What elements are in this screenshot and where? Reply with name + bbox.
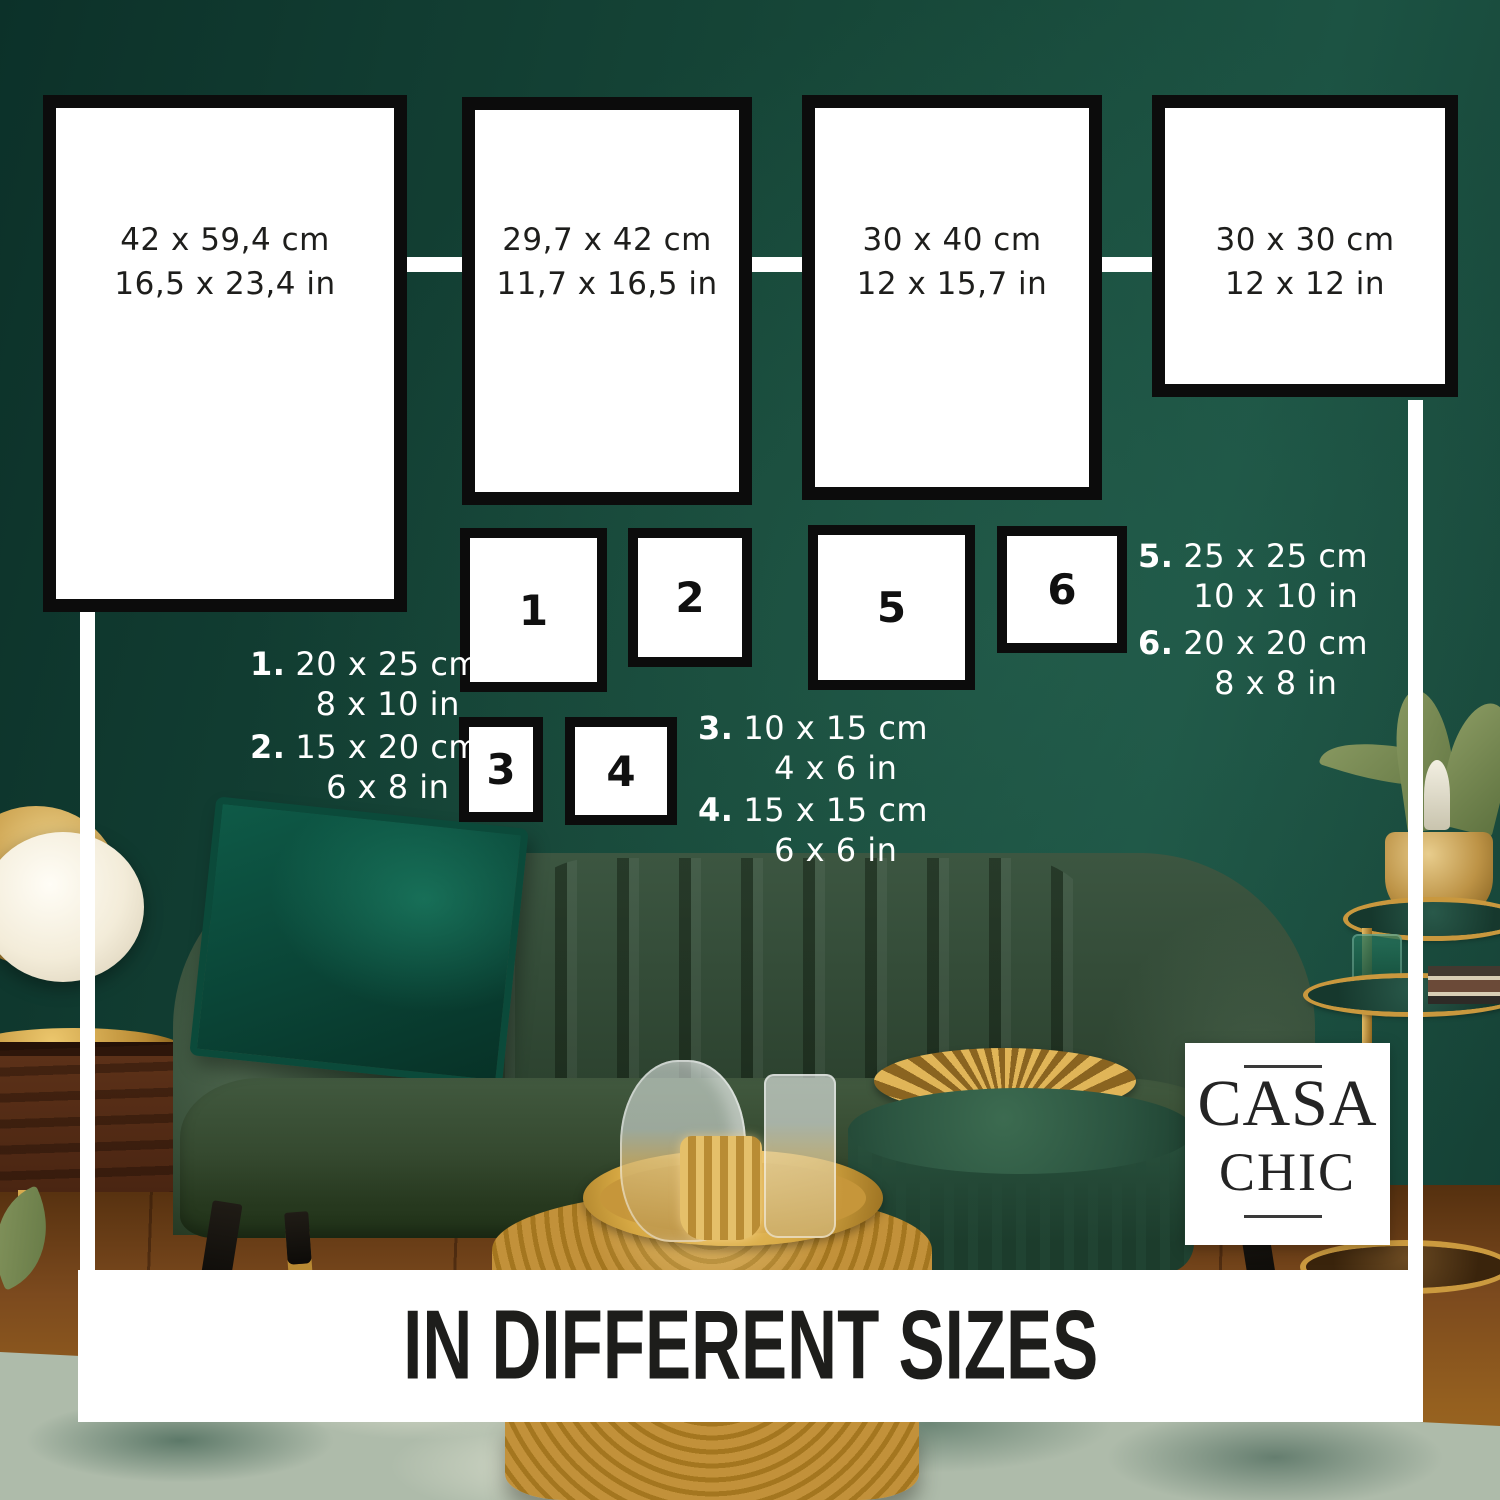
frame-20x25: 1	[460, 528, 607, 692]
legend-item-3: 3. 10 x 15 cm 4 x 6 in	[698, 708, 928, 788]
connector-line-left	[80, 612, 95, 1272]
legend-item-6: 6. 20 x 20 cm 8 x 8 in	[1138, 623, 1368, 703]
product-image: 42 x 59,4 cm 16,5 x 23,4 in 29,7 x 42 cm…	[0, 0, 1500, 1500]
legend-item-2: 2. 15 x 20 cm 6 x 8 in	[250, 727, 480, 807]
legend-number: 1.	[250, 644, 285, 724]
legend-cm: 20 x 25 cm	[295, 645, 480, 683]
legend-item-1: 1. 20 x 25 cm 8 x 10 in	[250, 644, 480, 724]
logo-text-casa: CASA	[1185, 1071, 1390, 1137]
legend-in: 8 x 10 in	[316, 685, 460, 723]
frame-size-cm: 30 x 40 cm	[815, 218, 1089, 262]
frame-number: 1	[519, 586, 548, 635]
logo-rule-bottom	[1244, 1215, 1322, 1218]
frame-number: 4	[606, 747, 635, 796]
legend-item-5: 5. 25 x 25 cm 10 x 10 in	[1138, 536, 1368, 616]
legend-in: 4 x 6 in	[774, 749, 897, 787]
frame-30x30: 30 x 30 cm 12 x 12 in	[1152, 95, 1458, 397]
legend-in: 6 x 8 in	[326, 768, 449, 806]
frame-20x20: 6	[997, 526, 1127, 653]
legend-cm: 15 x 20 cm	[295, 728, 480, 766]
frame-42x59: 42 x 59,4 cm 16,5 x 23,4 in	[43, 95, 407, 612]
legend-cm: 15 x 15 cm	[743, 791, 928, 829]
highball-glass	[764, 1074, 836, 1238]
textured-votive-glass	[680, 1136, 762, 1240]
frame-size-cm: 30 x 30 cm	[1165, 218, 1445, 262]
frame-15x20: 2	[628, 528, 752, 667]
legend-number: 6.	[1138, 623, 1173, 703]
legend-in: 6 x 6 in	[774, 831, 897, 869]
plant-bud	[1424, 760, 1450, 830]
legend-in: 10 x 10 in	[1193, 577, 1358, 615]
frame-number: 2	[675, 573, 704, 622]
frame-29x42: 29,7 x 42 cm 11,7 x 16,5 in	[462, 97, 752, 505]
gold-coffee-table-base	[505, 1422, 919, 1500]
legend-cm: 20 x 20 cm	[1183, 624, 1368, 662]
legend-number: 2.	[250, 727, 285, 807]
frame-25x25: 5	[808, 525, 975, 690]
books-stack	[1428, 966, 1500, 1004]
legend-in: 8 x 8 in	[1214, 664, 1337, 702]
banner-title: IN DIFFERENT SIZES	[403, 1290, 1098, 1402]
frame-size-in: 12 x 15,7 in	[815, 262, 1089, 306]
sofa-leg	[284, 1211, 312, 1265]
frame-size-in: 12 x 12 in	[1165, 262, 1445, 306]
logo-text-chic: CHIC	[1185, 1145, 1390, 1199]
brand-logo: CASA CHIC	[1185, 1043, 1390, 1245]
legend-cm: 25 x 25 cm	[1183, 537, 1368, 575]
legend-cm: 10 x 15 cm	[743, 709, 928, 747]
bottom-banner: IN DIFFERENT SIZES	[78, 1270, 1423, 1422]
frame-number: 6	[1047, 565, 1076, 614]
velvet-pillow	[189, 796, 528, 1087]
frame-number: 3	[486, 745, 515, 794]
frame-30x40: 30 x 40 cm 12 x 15,7 in	[802, 95, 1102, 500]
ottoman-top	[848, 1088, 1194, 1174]
legend-number: 4.	[698, 790, 733, 870]
frame-size-cm: 29,7 x 42 cm	[475, 218, 739, 262]
frame-15x15: 4	[565, 717, 677, 825]
legend-number: 5.	[1138, 536, 1173, 616]
legend-item-4: 4. 15 x 15 cm 6 x 6 in	[698, 790, 928, 870]
frame-size-cm: 42 x 59,4 cm	[56, 218, 394, 262]
frame-size-in: 11,7 x 16,5 in	[475, 262, 739, 306]
connector-line-right	[1408, 400, 1423, 1272]
frame-size-in: 16,5 x 23,4 in	[56, 262, 394, 306]
frame-number: 5	[877, 583, 906, 632]
legend-number: 3.	[698, 708, 733, 788]
